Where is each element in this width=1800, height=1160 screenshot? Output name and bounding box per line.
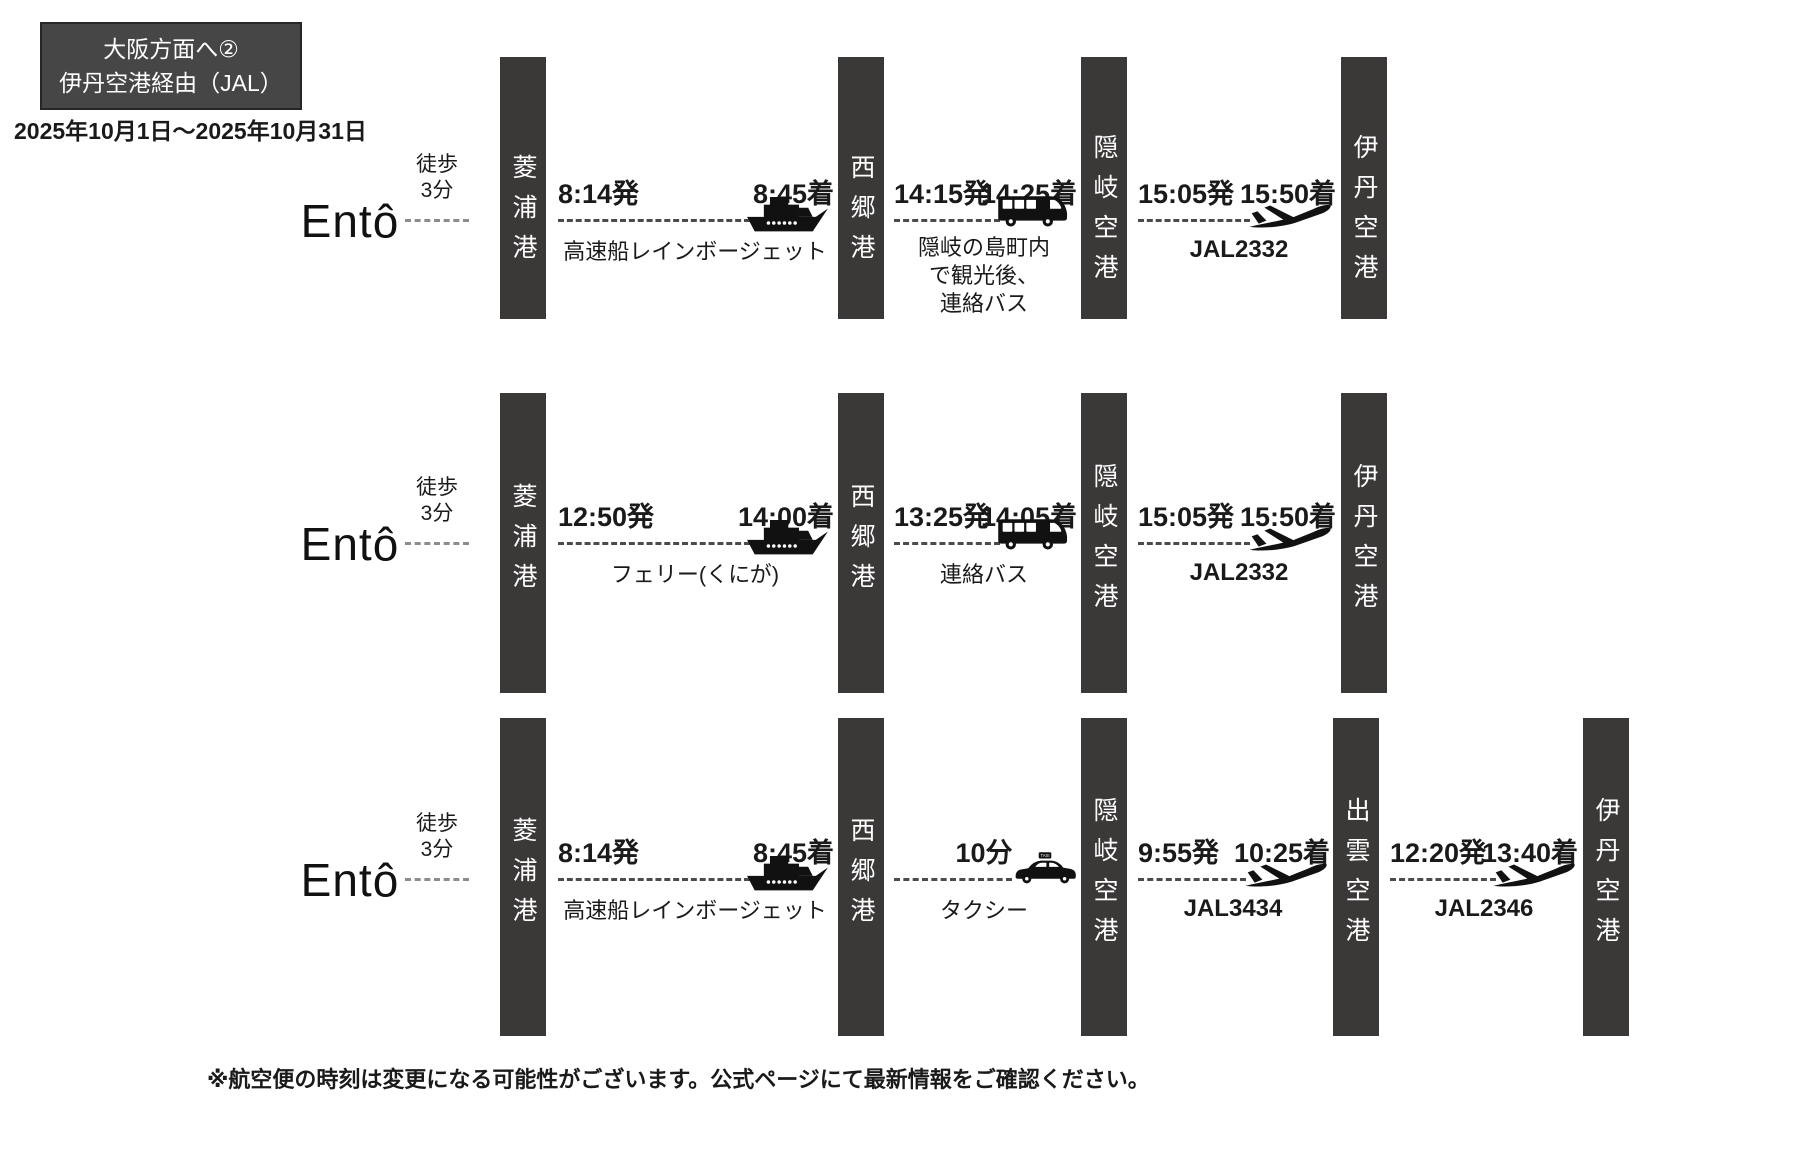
station-label: 菱浦港 [500,817,546,937]
walk-label: 徒歩 3分 [402,152,472,204]
page-title-line2: 伊丹空港経由（JAL） [59,66,283,100]
transit-dashed-line [1390,878,1496,881]
depart-time: 12:20発 [1390,831,1486,870]
transit-label: タクシー [888,893,1080,925]
transit-dashed-line [894,878,1012,881]
depart-time: 8:14発 [558,831,639,870]
transit-label: 連絡バス [888,557,1080,589]
walk-label: 徒歩 3分 [402,811,472,863]
station-bar: 菱浦港 [500,393,546,693]
ento-logo: Entô [300,517,400,571]
plane-icon [1488,849,1579,896]
transit-label-line: 隠岐の島町内 [888,234,1080,262]
transit-dashed-line [1138,542,1250,545]
svg-text:TAXI: TAXI [1041,853,1050,858]
station-label: 西郷港 [838,817,884,937]
station-label: 隠岐空港 [1081,134,1127,294]
transit-label: 高速船レインボージェット [552,893,838,925]
transit-dashed-line [894,219,1000,222]
walk-label-line2: 3分 [402,501,472,527]
depart-time: 12:50発 [558,495,654,534]
station-label: 隠岐空港 [1081,463,1127,623]
depart-time: 9:55発 [1138,831,1219,870]
depart-time: 13:25発 [894,495,990,534]
transit-label-line: 連絡バス [888,290,1080,318]
date-range: 2025年10月1日～2025年10月31日 [14,112,367,146]
station-label: 菱浦港 [500,483,546,603]
station-label: 伊丹空港 [1341,134,1387,294]
transit-label-line: で観光後、 [888,262,1080,290]
walk-dashed-line [405,542,469,545]
walk-label: 徒歩 3分 [402,475,472,527]
station-bar: 隠岐空港 [1081,393,1127,693]
depart-time: 15:05発 [1138,172,1234,211]
station-label: 西郷港 [838,154,884,274]
transit-label: 隠岐の島町内 で観光後、 連絡バス [888,234,1080,318]
flight-number: JAL2332 [1144,236,1334,264]
transit-label: フェリー(くにが) [552,557,838,589]
walk-label-line1: 徒歩 [402,152,472,178]
station-label: 菱浦港 [500,154,546,274]
flight-number: JAL3434 [1140,895,1326,923]
flight-number: JAL2346 [1392,895,1576,923]
walk-dashed-line [405,878,469,881]
walk-label-line2: 3分 [402,837,472,863]
transit-dashed-line [558,878,750,881]
ento-logo: Entô [300,194,400,248]
plane-icon [1244,513,1335,560]
ento-logo: Entô [300,853,400,907]
walk-label-line1: 徒歩 [402,811,472,837]
page-title: 大阪方面へ② 伊丹空港経由（JAL） [40,22,302,110]
walk-dashed-line [405,219,469,222]
transit-label: 高速船レインボージェット [552,234,838,266]
station-bar: 菱浦港 [500,718,546,1036]
walk-label-line2: 3分 [402,178,472,204]
station-bar: 西郷港 [838,393,884,693]
station-bar: 菱浦港 [500,57,546,319]
transit-dashed-line [1138,878,1246,881]
ferry-icon [744,845,828,893]
station-bar: 西郷港 [838,57,884,319]
transit-dashed-line [894,542,1000,545]
transit-dashed-line [558,542,750,545]
station-label: 伊丹空港 [1583,797,1629,957]
station-label: 隠岐空港 [1081,797,1127,957]
station-bar: 隠岐空港 [1081,718,1127,1036]
station-label: 伊丹空港 [1341,463,1387,623]
station-bar: 伊丹空港 [1341,57,1387,319]
depart-time: 15:05発 [1138,495,1234,534]
walk-label-line1: 徒歩 [402,475,472,501]
flight-number: JAL2332 [1144,559,1334,587]
route-diagram: 大阪方面へ② 伊丹空港経由（JAL） 2025年10月1日～2025年10月31… [0,0,1800,1160]
plane-icon [1244,190,1335,237]
taxi-icon: TAXI [1010,849,1080,889]
transit-dashed-line [558,219,750,222]
station-bar: 伊丹空港 [1341,393,1387,693]
page-title-line1: 大阪方面へ② [103,32,239,66]
station-label: 出雲空港 [1333,797,1379,957]
station-label: 西郷港 [838,483,884,603]
plane-icon [1240,849,1331,896]
station-bar: 出雲空港 [1333,718,1379,1036]
bus-icon [996,513,1070,555]
station-bar: 隠岐空港 [1081,57,1127,319]
station-bar: 西郷港 [838,718,884,1036]
bus-icon [996,190,1070,232]
ferry-icon [744,509,828,557]
transit-dashed-line [1138,219,1250,222]
footnote: ※航空便の時刻は変更になる可能性がございます。公式ページにて最新情報をご確認くだ… [207,1062,1150,1094]
depart-time: 14:15発 [894,172,990,211]
ferry-icon [744,186,828,234]
station-bar: 伊丹空港 [1583,718,1629,1036]
depart-time: 8:14発 [558,172,639,211]
